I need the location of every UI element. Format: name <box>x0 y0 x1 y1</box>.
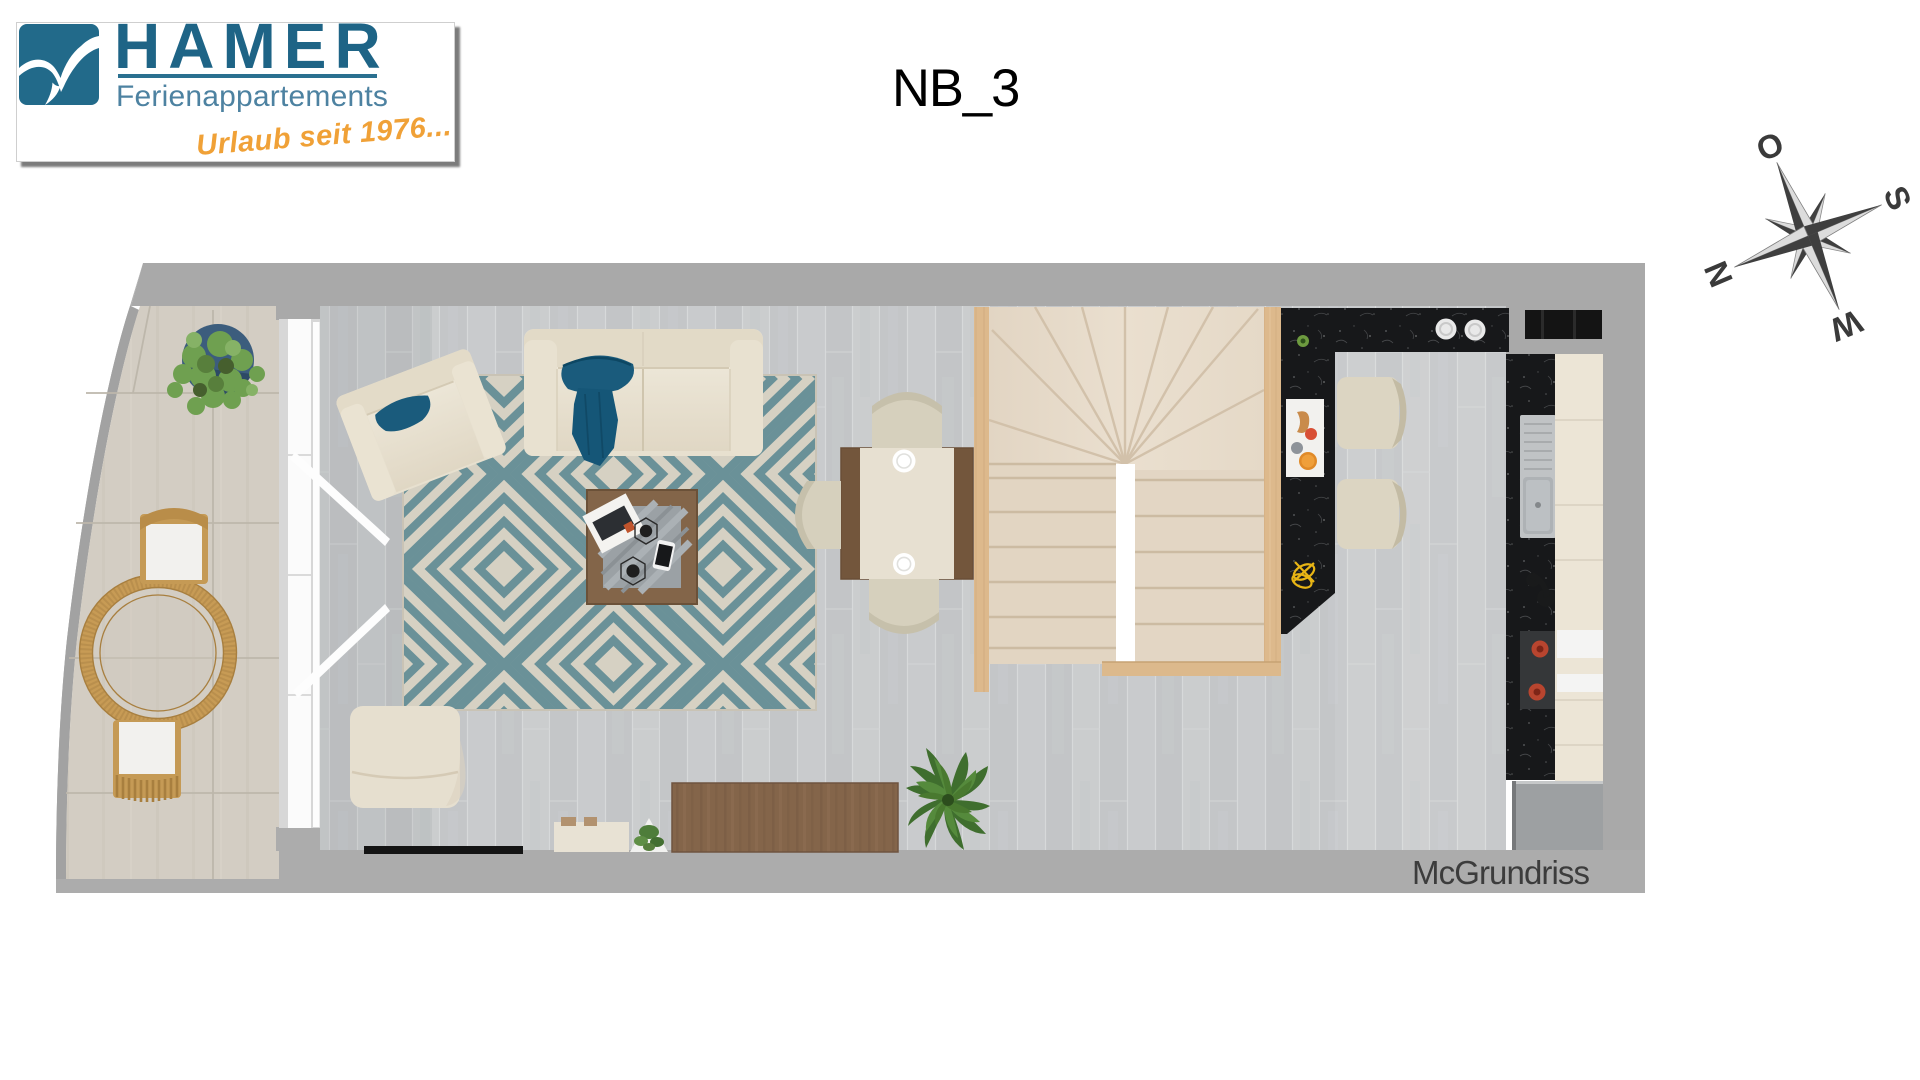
svg-text:S: S <box>1876 181 1919 216</box>
svg-text:W: W <box>1824 303 1868 350</box>
svg-text:O: O <box>1751 124 1789 168</box>
svg-text:N: N <box>1697 256 1740 292</box>
